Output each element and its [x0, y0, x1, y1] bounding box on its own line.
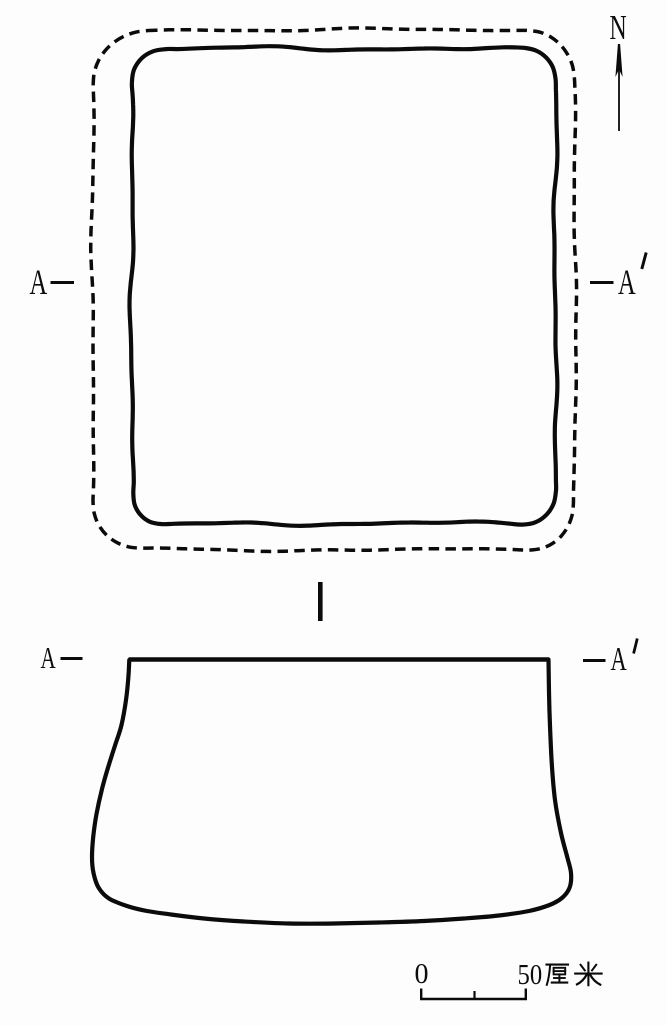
svg-text:A: A [618, 262, 636, 302]
svg-text:50: 50 [518, 960, 543, 991]
svg-text:N: N [610, 9, 627, 48]
svg-text:A: A [30, 262, 48, 302]
svg-text:A: A [611, 640, 627, 678]
svg-text:A: A [41, 640, 56, 675]
svg-text:0: 0 [415, 959, 429, 990]
